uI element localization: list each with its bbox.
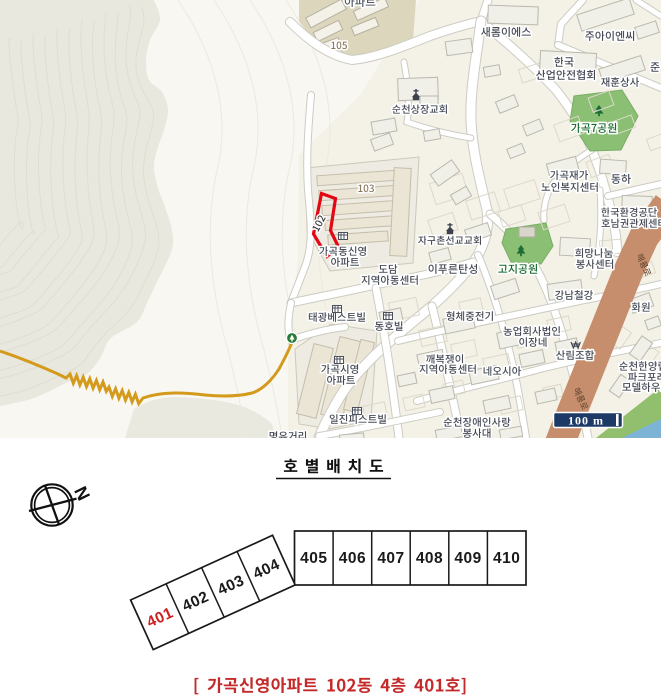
svg-text:410: 410 [493,550,520,567]
svg-text:100 m: 100 m [568,414,604,428]
svg-text:409: 409 [454,550,481,567]
svg-text:408: 408 [416,550,443,567]
svg-text:405: 405 [300,550,327,567]
svg-text:407: 407 [377,550,404,567]
svg-text:406: 406 [339,550,366,567]
